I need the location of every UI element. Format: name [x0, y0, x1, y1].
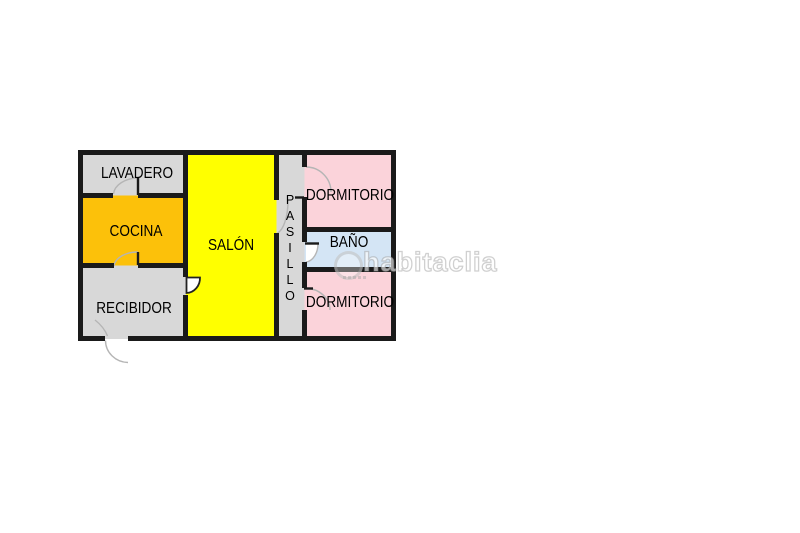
room-dormitorio-2 — [305, 270, 395, 340]
room-dormitorio-1 — [305, 152, 395, 230]
room-pasillo — [277, 152, 305, 339]
room-cocina — [80, 196, 186, 266]
room-salon — [186, 152, 277, 339]
room-recibidor — [80, 266, 186, 340]
room-lavadero — [80, 152, 186, 196]
floorplan-page: LAVADERO COCINA RECIBIDOR SALÓN PASILLO … — [0, 0, 800, 533]
floorplan-drawing — [0, 0, 800, 533]
